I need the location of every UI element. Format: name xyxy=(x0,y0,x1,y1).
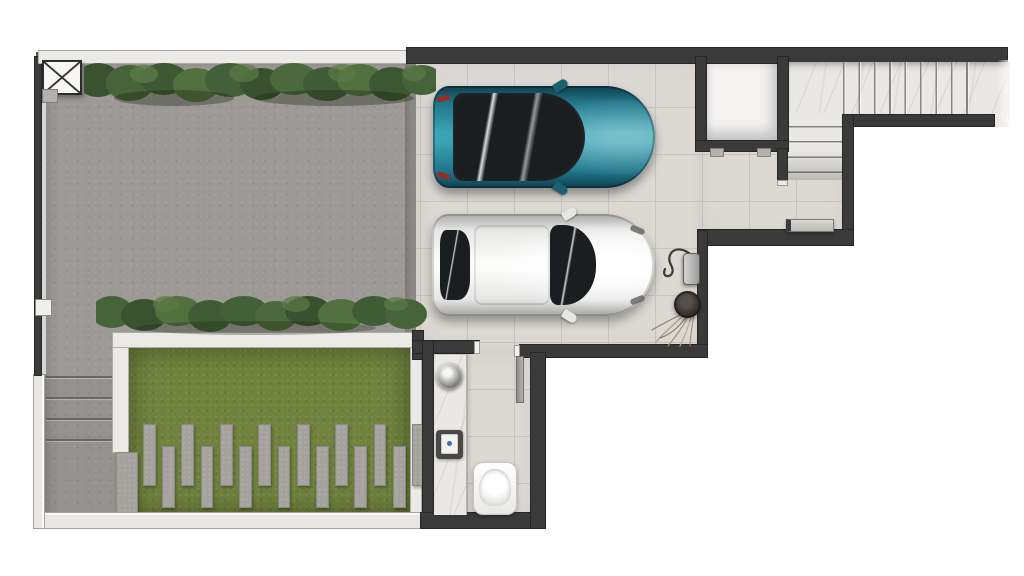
shoe-bench xyxy=(786,219,834,232)
stepping-stone xyxy=(220,424,233,486)
stepping-stone xyxy=(162,446,175,508)
boundary-wall-bottom xyxy=(33,512,425,529)
boundary-wall-left-lower xyxy=(33,374,45,529)
white-car-roof-outline xyxy=(474,225,550,305)
stepping-stone xyxy=(278,446,291,508)
closet-wall-left xyxy=(695,56,707,152)
gate-post xyxy=(42,89,58,103)
staircase-edge-fade xyxy=(997,60,1013,128)
wall-foyer-right xyxy=(842,114,854,240)
vessel-sink xyxy=(436,363,463,390)
staircase-upper-treads xyxy=(843,62,969,117)
stepping-stone xyxy=(393,446,406,508)
stepping-stone xyxy=(297,424,310,486)
stair-wall-stub-cap xyxy=(777,180,788,186)
ev-charger xyxy=(683,253,700,285)
closet-wall-right xyxy=(777,56,789,152)
stepping-stone xyxy=(239,446,252,508)
closet-interior xyxy=(707,64,777,140)
bathroom-wall-right xyxy=(530,352,546,529)
stepping-stone xyxy=(181,424,194,486)
floor-plan xyxy=(0,0,1024,576)
outdoor-steps xyxy=(46,376,117,460)
staircase-lower-run xyxy=(788,113,842,180)
wall-marker xyxy=(35,299,52,316)
door-jamb xyxy=(474,341,480,354)
garden-planter-left xyxy=(112,347,129,453)
teal-car-roof-glass xyxy=(453,93,585,181)
stepping-stone xyxy=(354,446,367,508)
bathroom-wall-left xyxy=(422,340,434,520)
walkway-paver xyxy=(116,452,138,513)
white-car xyxy=(432,214,654,316)
toilet xyxy=(473,462,517,515)
stepping-stone xyxy=(201,446,214,508)
hedge-top xyxy=(84,58,436,108)
wall-stairs-bottom xyxy=(843,114,995,127)
boundary-wall-left-upper xyxy=(34,56,42,376)
hedge-garden xyxy=(96,290,430,336)
left-wall-inner-face xyxy=(42,64,46,374)
stepping-stone xyxy=(143,424,156,486)
stepping-stones xyxy=(143,424,425,508)
white-car-rear-window xyxy=(440,230,470,300)
stepping-stone xyxy=(258,424,271,486)
stair-wall-stub xyxy=(777,148,788,182)
teal-car xyxy=(433,86,655,188)
closet-door-hinge xyxy=(757,148,771,157)
wall-unit xyxy=(436,430,463,459)
plant-pot xyxy=(674,291,701,318)
closet-door-hinge xyxy=(710,148,724,157)
stepping-stone xyxy=(374,424,387,486)
stepping-stone xyxy=(316,446,329,508)
stepping-stone xyxy=(335,424,348,486)
bathroom-door-leaf xyxy=(516,356,524,403)
